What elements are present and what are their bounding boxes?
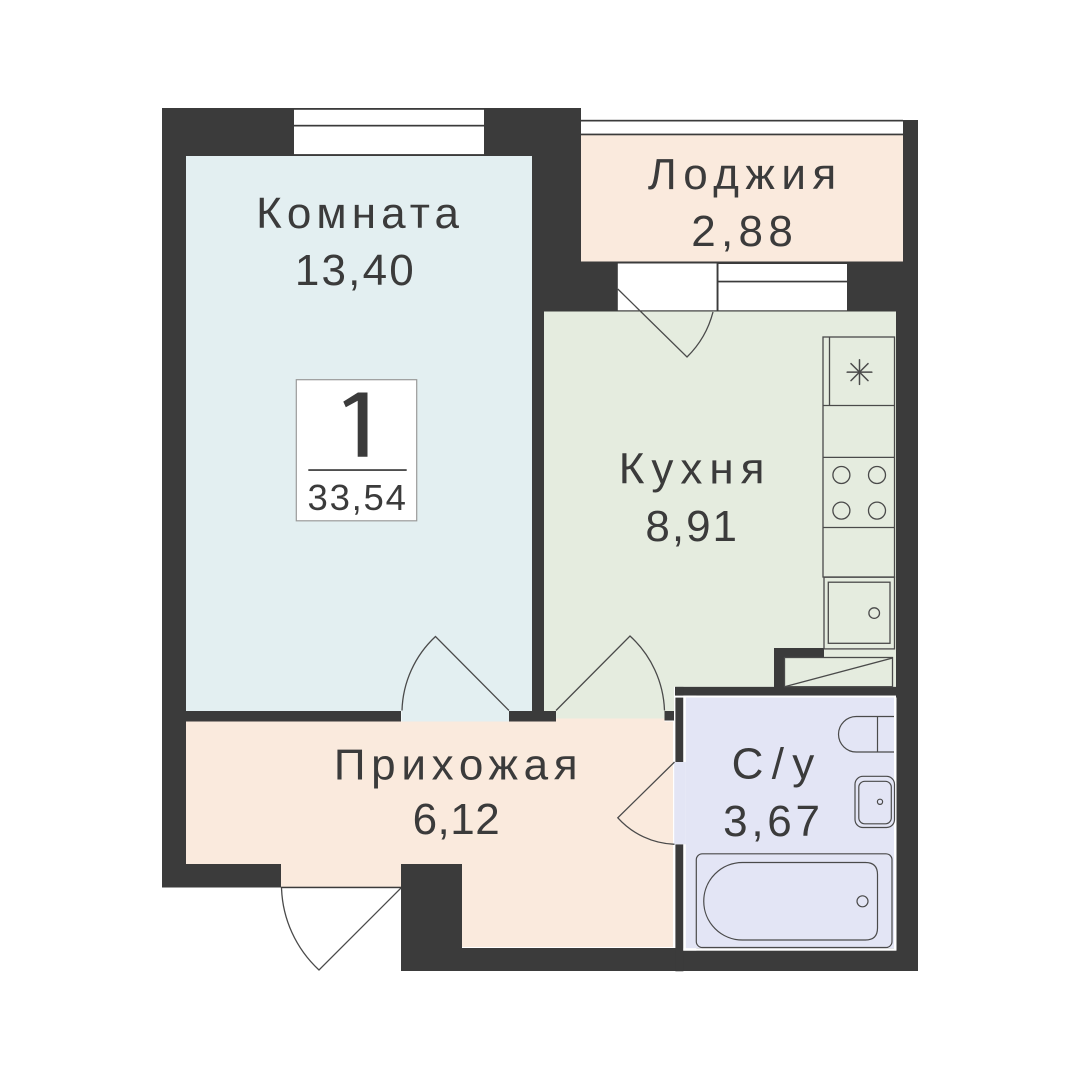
svg-text:33,54: 33,54: [308, 477, 408, 518]
svg-text:6,12: 6,12: [413, 795, 501, 844]
svg-text:3,67: 3,67: [723, 797, 823, 846]
svg-text:13,40: 13,40: [295, 246, 416, 295]
svg-text:Кухня: Кухня: [619, 445, 772, 494]
svg-text:Прихожая: Прихожая: [334, 740, 584, 789]
svg-text:8,91: 8,91: [645, 502, 739, 551]
svg-text:Лоджия: Лоджия: [648, 150, 843, 199]
svg-text:С/у: С/у: [732, 739, 823, 788]
svg-text:Комната: Комната: [256, 189, 464, 238]
svg-text:2,88: 2,88: [691, 207, 798, 256]
